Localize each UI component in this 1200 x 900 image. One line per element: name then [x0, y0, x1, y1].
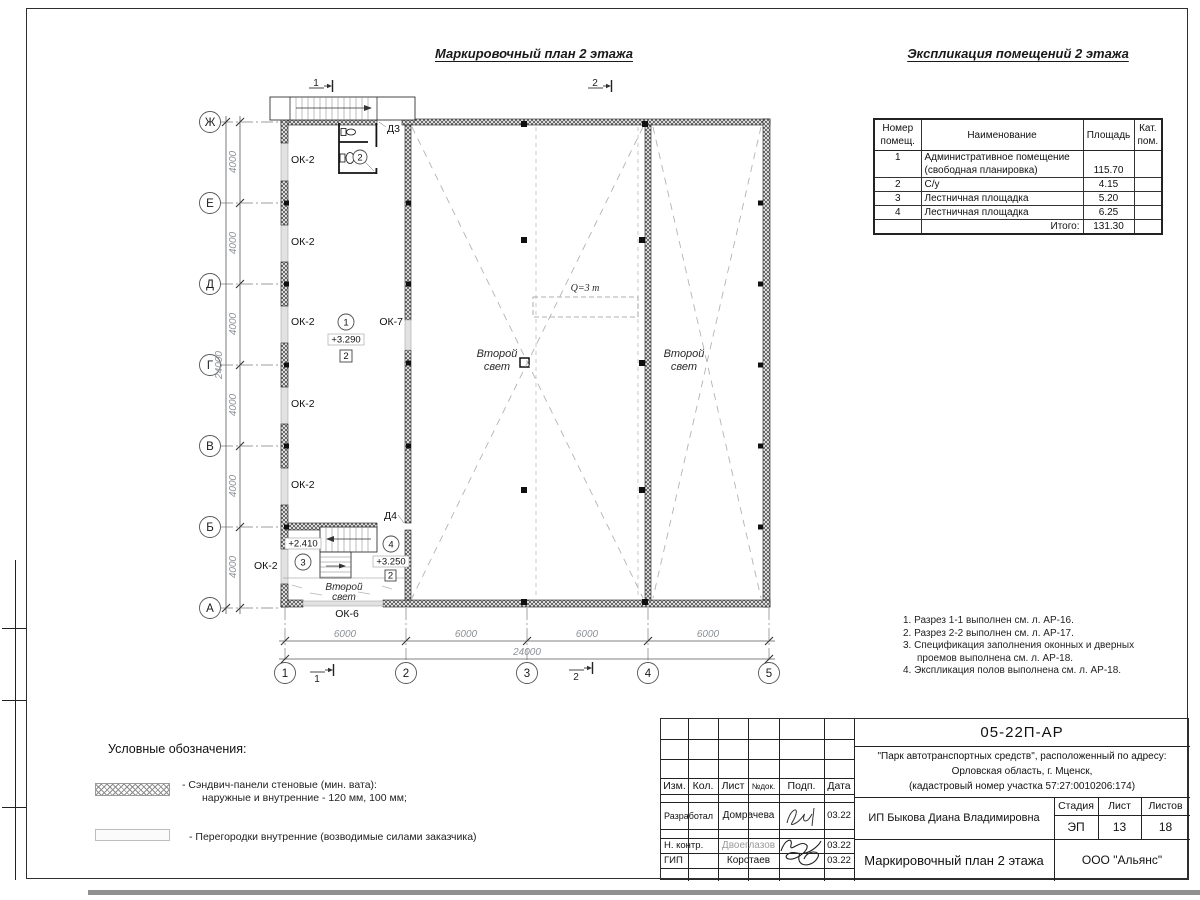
- project-line: Орловская область, г. Мценск,: [857, 764, 1187, 779]
- dim-4000: 4000: [228, 312, 239, 335]
- total-value: 131.30: [1083, 220, 1134, 235]
- room-1-number: 1: [343, 318, 348, 329]
- axis-row-label: А: [206, 603, 214, 615]
- schedule-title: Экспликация помещений 2 этажа: [898, 46, 1138, 61]
- room-4-floor-type: 2: [388, 571, 393, 582]
- dim-4000: 4000: [228, 231, 239, 254]
- second-light-label: свет: [484, 361, 510, 373]
- signature: [781, 803, 823, 829]
- col-kol: Кол.: [688, 778, 718, 794]
- dim-6000: 6000: [576, 629, 599, 640]
- axis-row-label: Б: [206, 522, 214, 534]
- window-label-ok2: ОК-2: [291, 479, 315, 491]
- col-header-number: Номерпомещ.: [874, 119, 921, 151]
- client-name: ИП Быкова Диана Владимировна: [854, 797, 1054, 839]
- section-mark-1: 1: [313, 78, 319, 89]
- dimension-lines: [226, 116, 775, 659]
- room-schedule: Номерпомещ. Наименование Площадь Кат.пом…: [873, 118, 1163, 235]
- second-light-label: свет: [671, 361, 697, 373]
- floor-plan: Q=3 т: [0, 0, 850, 710]
- sheet-title: Маркировочный план 2 этажа: [854, 839, 1054, 881]
- col-header-name: Наименование: [921, 119, 1083, 151]
- exterior-stair: [270, 97, 415, 120]
- sheets-total: 18: [1141, 815, 1190, 839]
- axis-row-label: Е: [206, 198, 214, 210]
- legend-item-partition: - Перегородки внутренние (возводимые сил…: [189, 831, 477, 843]
- room-2-number: 2: [357, 153, 362, 164]
- section-mark-1-bottom: 1: [314, 674, 320, 685]
- section-mark-2: 2: [592, 78, 598, 89]
- table-row: 4Лестничная площадка 6.25: [874, 206, 1162, 220]
- dim-24000: 24000: [214, 351, 225, 380]
- col-axis-bubbles: 1 2 3 4 5: [275, 663, 780, 684]
- room-4-number: 4: [388, 540, 393, 551]
- sink-icon: [341, 129, 346, 136]
- note-item: 1. Разрез 1-1 выполнен см. л. АР-16.: [903, 615, 1155, 628]
- door-label-d3: Д3: [387, 123, 400, 135]
- dim-6000: 6000: [697, 629, 720, 640]
- dim-4000: 4000: [228, 393, 239, 416]
- document-number: 05-22П-АР: [854, 719, 1190, 746]
- axis-col-label: 3: [524, 668, 530, 680]
- company-name: ООО "Альянс": [1054, 839, 1190, 881]
- legend-item-sandwich: - Сэндвич-панели стеновые (мин. вата):: [182, 779, 377, 791]
- stage-value: ЭП: [1054, 815, 1098, 839]
- axis-row-label: Ж: [205, 117, 216, 129]
- note-item: 4. Экспликация полов выполнена см. л. АР…: [903, 665, 1155, 678]
- legend-swatch-partition: [95, 829, 170, 841]
- date-ncontrol: 03.22: [824, 838, 854, 853]
- sheet-number: 13: [1098, 815, 1141, 839]
- room-1-floor-type: 2: [343, 351, 348, 362]
- axis-row-label: Г: [207, 360, 214, 372]
- role-ncontrol: Н. контр.: [661, 838, 718, 853]
- sheet-bottom-edge: [88, 890, 1200, 895]
- table-row: 3Лестничная площадка 5.20: [874, 192, 1162, 206]
- window-label-ok2: ОК-2: [291, 154, 315, 166]
- crane-rails: [536, 127, 638, 598]
- crane-capacity-label: Q=3 т: [571, 283, 600, 294]
- void-diagonals: [412, 127, 761, 598]
- crane-outline: [533, 297, 638, 317]
- dim-4000: 4000: [228, 474, 239, 497]
- name-ncontrol: Двоеглазов: [718, 838, 779, 853]
- section-mark-2-bottom: 2: [573, 672, 579, 683]
- dim-4000: 4000: [228, 555, 239, 578]
- toilet-tank-icon: [340, 154, 345, 162]
- project-description: "Парк автотранспортных средств", располо…: [857, 749, 1187, 794]
- window-ok7: [405, 320, 411, 350]
- project-line: (кадастровый номер участка 57:27:0010206…: [857, 779, 1187, 794]
- frame-stamp-divider: [2, 807, 26, 808]
- axis-col-label: 2: [403, 668, 409, 680]
- door-label-d4: Д4: [384, 510, 397, 522]
- total-label: Итого:: [921, 220, 1083, 235]
- room-1-elevation: +3.290: [331, 335, 360, 346]
- name-gip: Коротаев: [718, 853, 779, 868]
- architectural-sheet: Маркировочный план 2 этажа Экспликация п…: [0, 0, 1200, 900]
- room-4-elevation: +3.250: [376, 557, 405, 568]
- legend-item-sandwich-2: наружные и внутренние - 120 мм, 100 мм;: [202, 792, 407, 804]
- table-row: 2С/у 4.15: [874, 178, 1162, 192]
- stage-label: Стадия: [1054, 797, 1098, 815]
- col-data: Дата: [824, 778, 854, 794]
- window-label-ok7: ОК-7: [379, 316, 403, 328]
- role-developer: Разработал: [661, 802, 718, 829]
- table-row: (свободная планировка) 115.70: [874, 164, 1162, 178]
- dimension-ticks: [222, 118, 773, 663]
- col-ndok: №док.: [748, 778, 779, 794]
- window-label-ok2: ОК-2: [254, 560, 278, 572]
- legend-swatch-sandwich: [95, 783, 170, 796]
- role-gip: ГИП: [661, 853, 718, 868]
- axis-col-label: 5: [766, 668, 772, 680]
- name-developer: Домрачева: [718, 802, 779, 829]
- sheets-label: Листов: [1141, 797, 1190, 815]
- window-label-ok6: ОК-6: [335, 608, 359, 620]
- room-3-number: 3: [300, 558, 305, 569]
- window-label-ok2: ОК-2: [291, 398, 315, 410]
- note-item: 3. Спецификация заполнения оконных и две…: [903, 640, 1155, 665]
- axis-col-label: 4: [645, 668, 652, 680]
- note-item: 2. Разрез 2-2 выполнен см. л. АР-17.: [903, 628, 1155, 641]
- second-light-label: Второй: [477, 348, 518, 360]
- axis-row-label: В: [206, 441, 214, 453]
- col-izm: Изм.: [661, 778, 688, 794]
- dim-6000: 6000: [455, 629, 478, 640]
- title-block: Изм. Кол. Лист №док. Подп. Дата Разработ…: [660, 718, 1189, 880]
- table-total-row: Итого: 131.30: [874, 220, 1162, 235]
- date-developer: 03.22: [824, 802, 854, 829]
- window-label-ok2: ОК-2: [291, 236, 315, 248]
- second-light-label: Второй: [664, 348, 705, 360]
- col-header-cat: Кат.пом.: [1134, 119, 1162, 151]
- dim-24000: 24000: [512, 647, 541, 658]
- date-gip: 03.22: [824, 853, 854, 868]
- legend-title: Условные обозначения:: [108, 742, 247, 756]
- axis-row-label: Д: [206, 279, 214, 291]
- axis-col-label: 1: [282, 668, 288, 680]
- signature: [778, 837, 824, 869]
- col-podp: Подп.: [779, 778, 824, 794]
- table-row: 1Административное помещение: [874, 151, 1162, 165]
- room-3-elevation: +2.410: [288, 539, 317, 550]
- interior-stair: [320, 527, 377, 578]
- sink-bowl-icon: [347, 129, 356, 135]
- axis-lines: [221, 122, 769, 662]
- col-list: Лист: [718, 778, 748, 794]
- project-line: "Парк автотранспортных средств", располо…: [857, 749, 1187, 764]
- sheet-label: Лист: [1098, 797, 1141, 815]
- dimension-labels: 4000 4000 4000 4000 4000 4000 24000 6000…: [214, 150, 720, 658]
- dim-6000: 6000: [334, 629, 357, 640]
- dim-4000: 4000: [228, 150, 239, 173]
- notes-block: 1. Разрез 1-1 выполнен см. л. АР-16. 2. …: [903, 615, 1155, 678]
- col-header-area: Площадь: [1083, 119, 1134, 151]
- second-light-label: свет: [332, 592, 356, 603]
- window-label-ok2: ОК-2: [291, 316, 315, 328]
